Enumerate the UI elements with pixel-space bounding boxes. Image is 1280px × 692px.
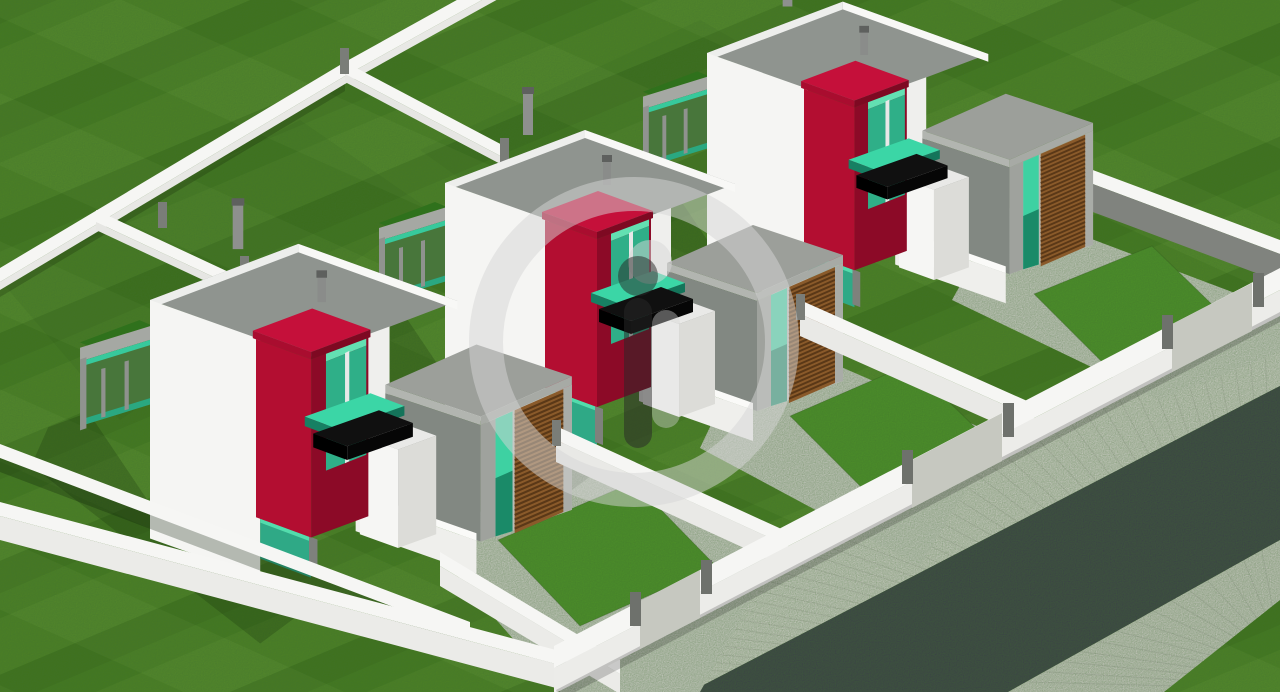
fence-post-back-corner <box>340 48 349 74</box>
garage-side-glass-dark <box>496 471 513 537</box>
garage-door-post-left <box>1010 162 1024 275</box>
annex-mullion-1 <box>662 115 666 161</box>
annex-mullion-2 <box>421 240 425 287</box>
garage-wood-door <box>1041 134 1086 266</box>
gate-post-middle-a <box>902 450 913 484</box>
watermark-i-stem-light <box>652 310 680 428</box>
watermark-i-dot-dark <box>618 256 658 296</box>
entry-cube-side <box>679 311 715 417</box>
render-stage: 3D rendering of three modern villas <box>0 0 1280 692</box>
chimney-tall <box>523 93 533 135</box>
chimney-short-cap <box>316 270 327 277</box>
annex-corner-post <box>80 357 86 430</box>
chimney-tall-cap <box>232 198 245 205</box>
fence-post-back-far-left <box>158 202 167 228</box>
annex-mullion-2 <box>125 360 129 410</box>
chimney-tall <box>783 0 793 6</box>
gate-post-middle-b <box>1003 403 1014 437</box>
chimney-tall <box>233 205 244 250</box>
chimney-short-cap <box>859 26 869 33</box>
entry-cube-side <box>398 436 436 548</box>
chimney-short <box>317 277 325 302</box>
chimney-short <box>860 32 868 55</box>
gate-post-right-b <box>1253 273 1264 307</box>
garage-side-glass-dark <box>1023 209 1039 269</box>
gate-post-left-a <box>630 592 641 626</box>
wall-post-divider-left <box>552 420 561 446</box>
architectural-render-svg <box>0 0 1280 692</box>
gate-post-left-b <box>701 560 712 594</box>
ground-floor-post <box>595 406 603 445</box>
annex-mullion-2 <box>684 108 688 154</box>
entry-cube-side <box>934 177 969 280</box>
ground-floor-post <box>853 269 861 307</box>
chimney-tall-cap <box>522 87 534 94</box>
garage-door-post-right <box>1085 131 1093 247</box>
wall-post-divider-right <box>796 294 805 320</box>
watermark-i-stem-dark <box>624 298 652 448</box>
chimney-short-cap <box>602 155 612 162</box>
garage-door-post-left <box>481 419 496 542</box>
red-tower-front <box>804 89 854 270</box>
annex-mullion-1 <box>101 368 105 418</box>
gate-post-right-a <box>1162 315 1173 349</box>
red-tower-front <box>256 339 311 537</box>
